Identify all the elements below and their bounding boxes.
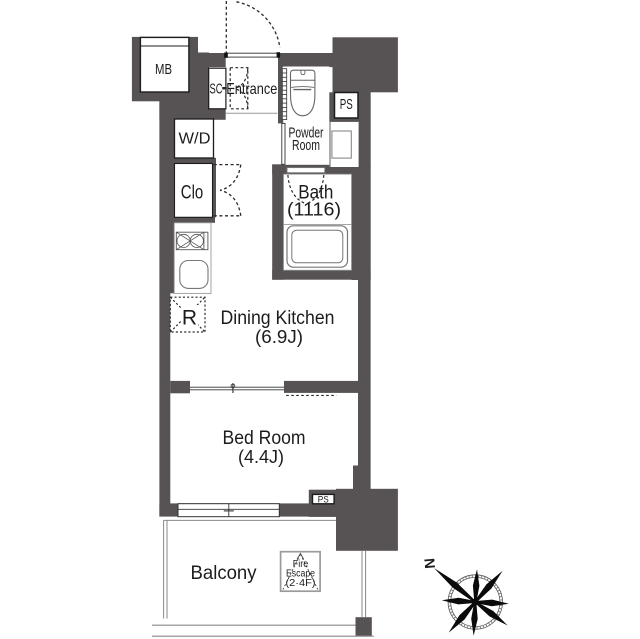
svg-text:Clo: Clo <box>181 183 204 204</box>
svg-text:R: R <box>182 307 197 330</box>
svg-text:MB: MB <box>155 61 172 78</box>
svg-text:PS: PS <box>318 494 329 505</box>
svg-text:Balcony: Balcony <box>191 562 257 584</box>
svg-text:(6.9J): (6.9J) <box>255 326 303 347</box>
svg-text:(4.4J): (4.4J) <box>238 446 284 467</box>
svg-text:N: N <box>420 558 437 570</box>
svg-text:Entrance: Entrance <box>226 81 277 98</box>
svg-text:PS: PS <box>340 97 353 113</box>
svg-text:W/D: W/D <box>179 131 211 148</box>
svg-text:(2·4F): (2·4F) <box>286 578 316 589</box>
svg-text:Room: Room <box>292 138 320 154</box>
svg-text:(1116): (1116) <box>287 200 341 220</box>
svg-text:SC: SC <box>210 81 223 98</box>
